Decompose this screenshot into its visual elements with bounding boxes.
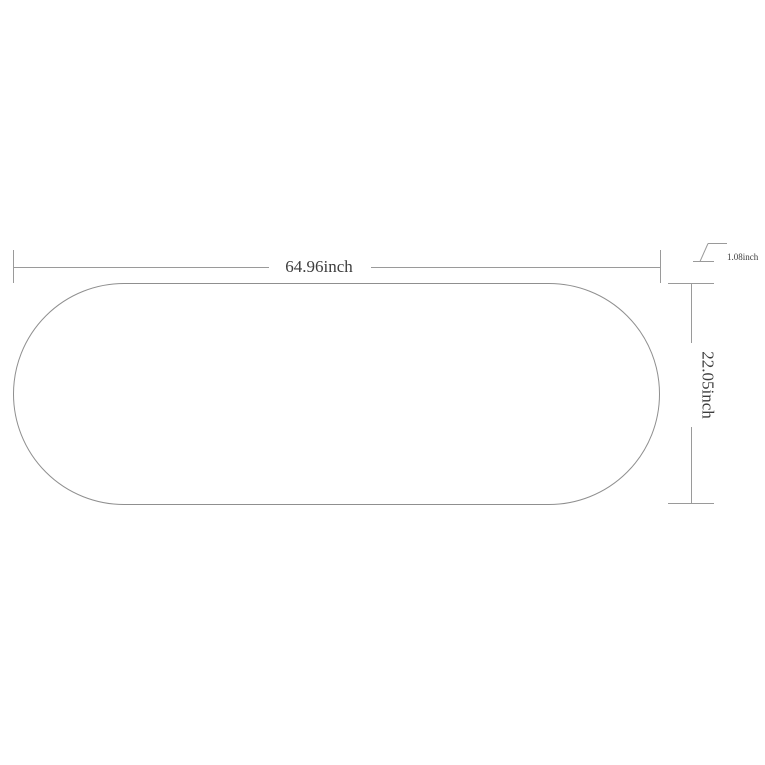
tabletop-outline: [14, 284, 660, 505]
width-dimension-label: 64.96inch: [285, 258, 353, 275]
thickness-symbol-diagonal-line: [700, 244, 708, 262]
height-dimension-label: 22.05inch: [700, 351, 717, 419]
diagram-lines: [0, 0, 765, 765]
thickness-symbol: [693, 244, 727, 262]
dimension-diagram: 64.96inch 22.05inch 1.08inch: [0, 0, 765, 765]
thickness-dimension-label: 1.08inch: [727, 253, 758, 262]
